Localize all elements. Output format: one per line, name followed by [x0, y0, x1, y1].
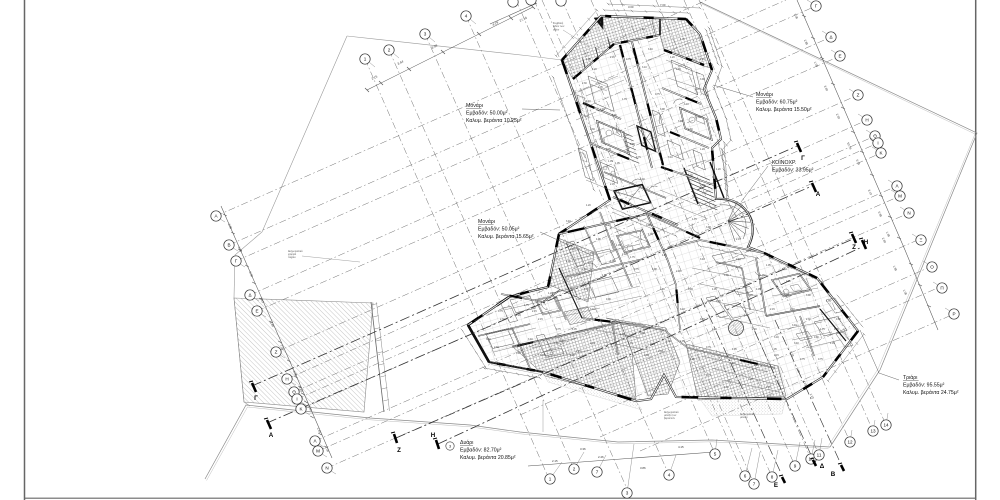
svg-text:1: 1: [364, 57, 367, 62]
svg-text:Ζ: Ζ: [397, 447, 401, 454]
svg-text:4.05: 4.05: [596, 238, 601, 241]
svg-text:0.90: 0.90: [836, 318, 841, 321]
svg-text:2.46: 2.46: [624, 134, 629, 137]
svg-text:οδών: οδών: [553, 27, 560, 31]
svg-text:Ρ: Ρ: [952, 312, 955, 317]
svg-text:2.15: 2.15: [576, 350, 581, 353]
svg-text:3.98: 3.98: [706, 226, 711, 229]
svg-text:12: 12: [847, 440, 853, 445]
svg-text:Εμβαδόν: 60.75μ²: Εμβαδόν: 60.75μ²: [756, 99, 798, 106]
svg-text:0.75: 0.75: [655, 93, 660, 96]
svg-text:2: 2: [573, 467, 576, 472]
svg-text:0.90: 0.90: [590, 252, 595, 255]
svg-text:Εμβαδόν: 82.70μ²: Εμβαδόν: 82.70μ²: [460, 447, 502, 454]
svg-text:3.98: 3.98: [678, 120, 683, 123]
svg-text:3.10: 3.10: [584, 288, 589, 291]
svg-text:0.75: 0.75: [630, 143, 635, 146]
svg-text:7: 7: [753, 482, 756, 487]
svg-text:3.10: 3.10: [590, 308, 595, 311]
svg-text:1.75: 1.75: [630, 256, 635, 259]
svg-text:Εμβαδόν: 95.55μ²: Εμβαδόν: 95.55μ²: [903, 382, 945, 389]
svg-text:2.46: 2.46: [736, 258, 741, 261]
svg-text:3: 3: [424, 32, 427, 37]
svg-text:0.90: 0.90: [724, 274, 729, 277]
svg-text:1.75: 1.75: [820, 328, 825, 331]
svg-text:4.05: 4.05: [596, 146, 601, 149]
svg-text:13: 13: [870, 429, 876, 434]
svg-text:Ο: Ο: [930, 265, 934, 270]
svg-text:3.98: 3.98: [576, 298, 581, 301]
svg-text:0.75: 0.75: [746, 250, 751, 253]
svg-text:μεταξύ: μεταξύ: [740, 416, 748, 419]
svg-text:4: 4: [668, 473, 671, 478]
svg-text:Ζ: Ζ: [857, 93, 860, 98]
svg-text:7.00: 7.00: [660, 3, 666, 7]
svg-text:14: 14: [883, 423, 889, 428]
svg-text:Η: Η: [431, 432, 436, 439]
svg-text:Η: Η: [865, 118, 868, 123]
svg-text:3.10: 3.10: [668, 156, 673, 159]
svg-text:2.30: 2.30: [658, 350, 663, 353]
svg-text:3.10: 3.10: [724, 386, 729, 389]
svg-text:1.20: 1.20: [586, 204, 591, 207]
svg-text:2: 2: [388, 48, 391, 53]
svg-text:3.40: 3.40: [540, 354, 545, 357]
svg-text:0.75: 0.75: [706, 346, 711, 349]
svg-text:0.90: 0.90: [606, 298, 611, 301]
svg-text:Μονάρι: Μονάρι: [478, 218, 495, 225]
svg-text:Γ: Γ: [801, 155, 805, 162]
svg-text:2.30: 2.30: [582, 268, 587, 271]
svg-text:3.36: 3.36: [580, 447, 586, 451]
svg-text:3.98: 3.98: [660, 108, 665, 111]
svg-text:4.05: 4.05: [712, 288, 717, 291]
svg-text:0.90: 0.90: [814, 336, 819, 339]
svg-text:1: 1: [549, 477, 552, 482]
svg-text:3.98: 3.98: [784, 294, 789, 297]
svg-text:0.75: 0.75: [626, 58, 631, 61]
svg-text:0.90: 0.90: [560, 340, 565, 343]
svg-text:0.75: 0.75: [556, 328, 561, 331]
svg-text:4.05: 4.05: [756, 288, 761, 291]
svg-text:4.05: 4.05: [662, 254, 667, 257]
svg-text:Β: Β: [831, 471, 836, 478]
svg-text:2.15: 2.15: [532, 310, 537, 313]
svg-text:Ε: Ε: [255, 309, 258, 314]
svg-text:Ξ: Ξ: [920, 238, 923, 243]
svg-text:Εμβαδόν: 50.05μ²: Εμβαδόν: 50.05μ²: [478, 226, 520, 233]
svg-text:3.10: 3.10: [730, 362, 735, 365]
svg-text:0.75: 0.75: [636, 156, 641, 159]
svg-text:3.10: 3.10: [680, 308, 685, 311]
svg-text:3.10: 3.10: [486, 338, 491, 341]
svg-text:3.10: 3.10: [642, 66, 647, 69]
svg-text:3.40: 3.40: [794, 342, 799, 345]
svg-text:Ν: Ν: [907, 211, 910, 216]
svg-text:Καλυμ. βεράντα 24.75μ²: Καλυμ. βεράντα 24.75μ²: [903, 389, 959, 396]
svg-text:2.15: 2.15: [538, 318, 543, 321]
svg-text:4: 4: [465, 14, 468, 19]
svg-text:1.20: 1.20: [548, 292, 553, 295]
svg-text:1.75: 1.75: [692, 218, 697, 221]
svg-text:1.05: 1.05: [598, 86, 603, 89]
svg-text:2.15: 2.15: [766, 386, 771, 389]
svg-text:1.20: 1.20: [592, 68, 597, 71]
svg-text:1.20: 1.20: [748, 378, 753, 381]
svg-text:Ι: Ι: [296, 397, 297, 402]
svg-text:3.98: 3.98: [640, 332, 645, 335]
svg-text:1.05: 1.05: [772, 348, 777, 351]
svg-text:Π: Π: [940, 286, 943, 291]
svg-text:1.75: 1.75: [628, 342, 633, 345]
svg-text:Καλυμ. βεράντα 15.65μ²: Καλυμ. βεράντα 15.65μ²: [478, 233, 534, 240]
svg-text:4.05: 4.05: [610, 260, 615, 263]
svg-text:4.05: 4.05: [572, 328, 577, 331]
svg-text:Α: Α: [816, 191, 821, 198]
svg-text:5: 5: [714, 452, 717, 457]
svg-text:Δ: Δ: [248, 293, 251, 298]
svg-text:4.15: 4.15: [678, 445, 684, 449]
svg-text:2.46: 2.46: [790, 308, 795, 311]
svg-text:3.40: 3.40: [712, 176, 717, 179]
svg-text:9: 9: [794, 464, 797, 469]
svg-text:3.40: 3.40: [566, 220, 571, 223]
svg-text:2.15: 2.15: [700, 58, 705, 61]
svg-text:0.75: 0.75: [818, 358, 823, 361]
svg-text:1.20: 1.20: [688, 174, 693, 177]
svg-text:1.20: 1.20: [670, 56, 675, 59]
svg-text:3.98: 3.98: [806, 294, 811, 297]
svg-text:2.30: 2.30: [582, 82, 587, 85]
svg-text:4.05: 4.05: [570, 354, 575, 357]
svg-text:0.90: 0.90: [716, 300, 721, 303]
svg-text:Τριάρι: Τριάρι: [903, 374, 917, 381]
svg-text:3.98: 3.98: [644, 354, 649, 357]
svg-text:Ζ: Ζ: [852, 244, 856, 251]
svg-text:1.75: 1.75: [614, 328, 619, 331]
svg-text:Η: Η: [864, 239, 869, 246]
svg-text:11: 11: [817, 453, 822, 458]
svg-text:Ε: Ε: [838, 54, 841, 59]
svg-text:3: 3: [626, 491, 629, 496]
svg-text:1.05: 1.05: [615, 162, 620, 165]
svg-text:3.40: 3.40: [700, 258, 705, 261]
svg-text:7: 7: [596, 470, 599, 475]
svg-text:3: 3: [449, 445, 451, 449]
svg-text:2.30: 2.30: [806, 318, 811, 321]
svg-text:2.46: 2.46: [566, 260, 571, 263]
svg-text:1.75: 1.75: [826, 300, 831, 303]
svg-text:ΚΟΙΝΟΧΡ.: ΚΟΙΝΟΧΡ.: [772, 160, 796, 166]
svg-text:3.10: 3.10: [684, 103, 689, 106]
svg-text:1.20: 1.20: [700, 148, 705, 151]
svg-text:Μ: Μ: [316, 449, 320, 454]
svg-text:2.46: 2.46: [600, 108, 605, 111]
svg-text:Εμβαδόν: 33:95μ²: Εμβαδόν: 33:95μ²: [772, 167, 814, 174]
svg-text:4.05: 4.05: [834, 328, 839, 331]
svg-text:3.00: 3.00: [628, 5, 634, 9]
svg-text:Μονάρι: Μονάρι: [756, 91, 773, 98]
svg-text:Ζ: Ζ: [275, 350, 278, 355]
svg-text:3.86: 3.86: [640, 466, 646, 470]
svg-text:Ε: Ε: [774, 482, 778, 489]
svg-text:Εμβαδόν: 50.00μ²: Εμβαδόν: 50.00μ²: [466, 110, 508, 117]
svg-text:3.40: 3.40: [528, 338, 533, 341]
svg-text:0.90: 0.90: [570, 248, 575, 251]
svg-text:0.90: 0.90: [646, 224, 651, 227]
svg-text:1.75: 1.75: [760, 274, 765, 277]
svg-text:2.15: 2.15: [610, 56, 615, 59]
svg-text:1.20: 1.20: [620, 333, 625, 336]
svg-text:Δυάρι: Δυάρι: [460, 439, 473, 446]
svg-text:Α: Α: [269, 432, 274, 439]
svg-text:Ι: Ι: [877, 141, 878, 146]
svg-text:0.90: 0.90: [554, 342, 559, 345]
svg-text:3.98: 3.98: [700, 78, 705, 81]
svg-text:0.90: 0.90: [676, 68, 681, 71]
svg-text:Η: Η: [285, 377, 288, 382]
svg-text:2.15: 2.15: [552, 459, 558, 463]
svg-text:βεραντών: βεραντών: [664, 417, 676, 420]
svg-text:2.30: 2.30: [494, 346, 499, 349]
svg-text:Γ: Γ: [254, 395, 258, 402]
svg-text:1.20: 1.20: [716, 168, 721, 171]
svg-text:Δ: Δ: [820, 463, 825, 470]
svg-text:Καλυμ. βεράντα 10.25μ²: Καλυμ. βεράντα 10.25μ²: [466, 117, 522, 124]
svg-text:2.46: 2.46: [590, 342, 595, 345]
svg-text:2.15: 2.15: [606, 224, 611, 227]
svg-text:3.40: 3.40: [648, 48, 653, 51]
svg-text:2.15: 2.15: [610, 183, 615, 186]
svg-text:Καλυμ. βεράντα 20.85μ²: Καλυμ. βεράντα 20.85μ²: [460, 454, 516, 461]
svg-text:2.46: 2.46: [846, 316, 851, 319]
svg-text:1.05: 1.05: [520, 343, 525, 346]
svg-text:Ν: Ν: [325, 466, 328, 471]
svg-text:Μ: Μ: [898, 194, 902, 199]
svg-text:1.75: 1.75: [524, 304, 529, 307]
svg-text:Β: Β: [227, 243, 230, 248]
svg-text:1.05: 1.05: [616, 244, 621, 247]
svg-text:1.75: 1.75: [680, 38, 685, 41]
svg-text:Μονάρι: Μονάρι: [466, 102, 483, 109]
svg-text:2.30: 2.30: [666, 340, 671, 343]
svg-text:2.46: 2.46: [676, 270, 681, 273]
svg-text:0.75: 0.75: [800, 358, 805, 361]
svg-text:8: 8: [771, 475, 774, 480]
svg-text:1.75: 1.75: [622, 98, 627, 101]
svg-text:4.05: 4.05: [732, 348, 737, 351]
svg-text:1.20: 1.20: [754, 364, 759, 367]
svg-text:1.05: 1.05: [766, 264, 771, 267]
svg-text:6: 6: [744, 474, 747, 479]
svg-text:Δ: Δ: [829, 35, 832, 40]
svg-text:3.10: 3.10: [774, 336, 779, 339]
svg-text:0.75: 0.75: [498, 310, 503, 313]
svg-text:2.15: 2.15: [736, 238, 741, 241]
svg-text:τοιχάκι: τοιχάκι: [288, 256, 296, 259]
svg-text:3.40: 3.40: [516, 352, 521, 355]
svg-text:3.40: 3.40: [792, 324, 797, 327]
svg-text:2.15: 2.15: [770, 308, 775, 311]
svg-text:Καλυμ. βεράντα 15.50μ²: Καλυμ. βεράντα 15.50μ²: [756, 106, 812, 113]
svg-text:2.30: 2.30: [688, 128, 693, 131]
svg-text:2.46: 2.46: [598, 455, 604, 459]
